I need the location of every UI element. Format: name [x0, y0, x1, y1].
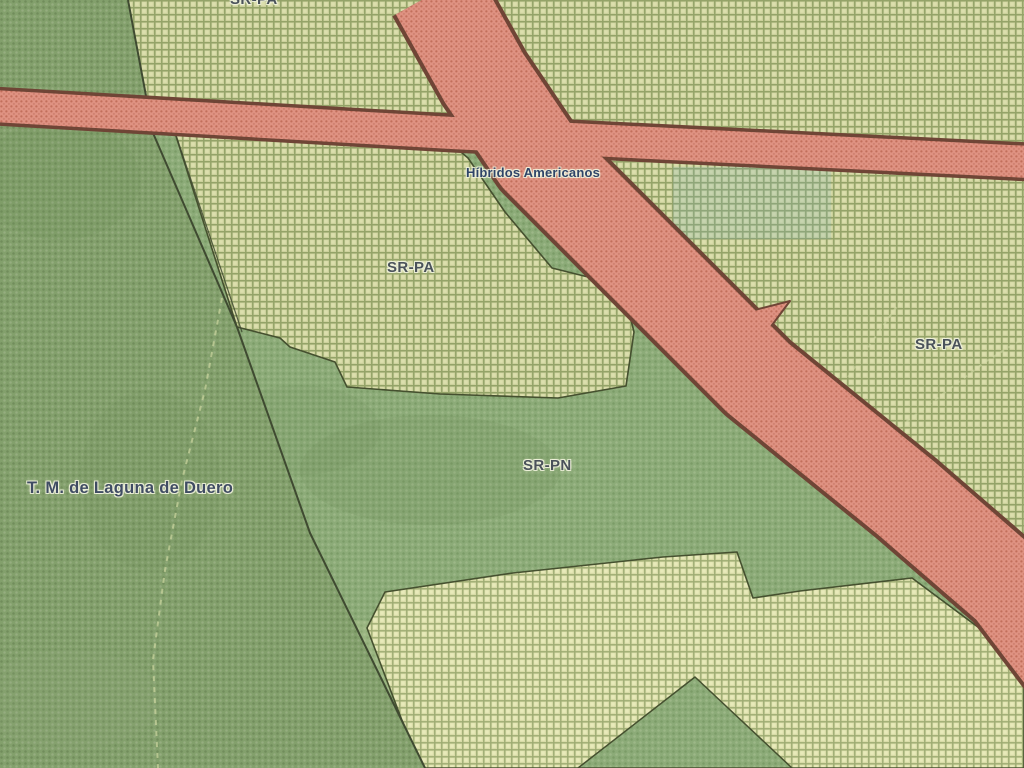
map-canvas[interactable]: SR-PA Híbridos Americanos SR-PA SR-PA SR… [0, 0, 1024, 768]
water-overlay-area [673, 167, 831, 239]
map-layers [0, 0, 1024, 768]
